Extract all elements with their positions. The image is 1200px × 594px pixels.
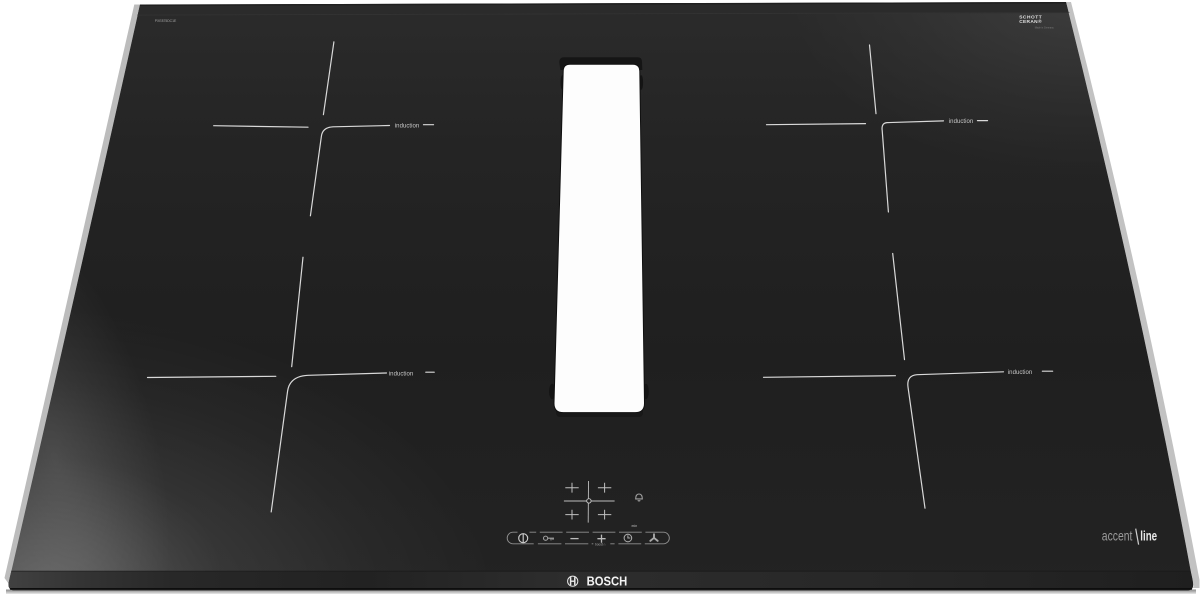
svg-text:induction: induction (949, 119, 973, 125)
svg-text:CERAN®: CERAN® (1019, 18, 1042, 25)
svg-text:Made in Germany: Made in Germany (1035, 26, 1055, 29)
svg-text:induction: induction (389, 371, 413, 377)
svg-text:induction: induction (1008, 370, 1032, 376)
svg-text:line: line (1140, 529, 1157, 544)
svg-text:BOSCH: BOSCH (587, 575, 628, 589)
svg-text:PXE875DC1E: PXE875DC1E (155, 19, 177, 23)
svg-text:min: min (632, 524, 638, 528)
svg-text:boost☆: boost☆ (595, 542, 607, 546)
svg-text:accent: accent (1102, 529, 1133, 544)
svg-text:induction: induction (395, 123, 419, 129)
